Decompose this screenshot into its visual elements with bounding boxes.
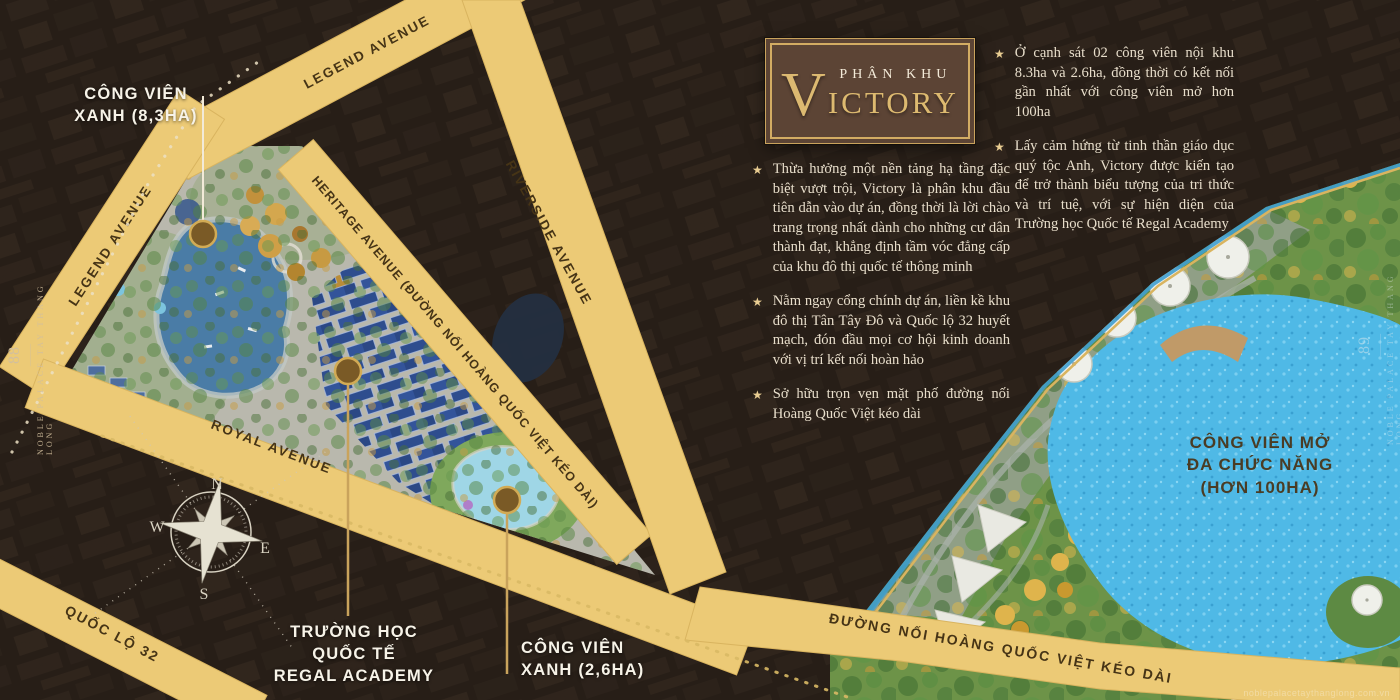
star-icon: ★ [994, 44, 1005, 122]
compass-e: E [260, 540, 270, 557]
marker-school [335, 358, 361, 384]
label-park83-line2: XANH (8,3HA) [54, 106, 218, 128]
left-rail-title: NOBLE PALACE TAY THANG LONG [36, 255, 54, 455]
feature-bullet-list: ★ Ở cạnh sát 02 công viên nội khu 8.3ha … [994, 44, 1234, 250]
left-page-number: 88 [6, 346, 24, 364]
right-page-number: 89 [1356, 336, 1374, 354]
feature-bullet-1-text: Ở cạnh sát 02 công viên nội khu 8.3ha và… [1015, 44, 1234, 122]
intro-bullet-list: ★ Thừa hưởng một nền tảng hạ tầng đặc bi… [752, 160, 1010, 439]
intro-bullet-2-text: Nằm ngay cổng chính dự án, liền kề khu đ… [773, 292, 1010, 370]
intro-bullet-1: ★ Thừa hưởng một nền tảng hạ tầng đặc bi… [752, 160, 1010, 277]
right-page-rail: 89 —— NOBLE PALACE TAY THANG LONG [1356, 245, 1400, 445]
title-rest: ICTORY [828, 85, 959, 121]
rail-dash: —— [24, 344, 36, 366]
compass-w: W [149, 519, 165, 536]
label-park-83ha: CÔNG VIÊN XANH (8,3HA) [54, 84, 218, 128]
star-icon: ★ [752, 385, 763, 424]
compass-s: S [200, 586, 209, 603]
title-row: V PHÂN KHU ICTORY [781, 61, 959, 122]
label-park26-line1: CÔNG VIÊN [521, 638, 671, 660]
star-icon: ★ [752, 160, 763, 277]
title-box-inner: V PHÂN KHU ICTORY [770, 43, 970, 139]
label-park83-line1: CÔNG VIÊN [54, 84, 218, 106]
star-icon: ★ [752, 292, 763, 370]
label-school-line1: TRƯỜNG HỌC [272, 622, 436, 644]
label-park26-line2: XANH (2,6HA) [521, 660, 671, 682]
intro-bullet-2: ★ Nằm ngay cổng chính dự án, liền kề khu… [752, 292, 1010, 370]
label-open-park: CÔNG VIÊN MỞ ĐA CHỨC NĂNG (HƠN 100HA) [1170, 432, 1350, 499]
label-openpark-line1: CÔNG VIÊN MỞ [1170, 432, 1350, 454]
intro-bullet-3-text: Sở hữu trọn vẹn mặt phố đường nối Hoàng … [773, 385, 1010, 424]
feature-bullet-2-text: Lấy cảm hứng từ tinh thần giáo dục quý t… [1015, 137, 1234, 235]
title-box: V PHÂN KHU ICTORY [765, 38, 975, 144]
intro-bullet-3: ★ Sở hữu trọn vẹn mặt phố đường nối Hoàn… [752, 385, 1010, 424]
marker-park83 [190, 221, 216, 247]
title-initial: V [781, 69, 826, 122]
compass-n: N [211, 476, 223, 493]
rail-dash: —— [1374, 334, 1386, 356]
feature-bullet-1: ★ Ở cạnh sát 02 công viên nội khu 8.3ha … [994, 44, 1234, 122]
feature-bullet-2: ★ Lấy cảm hứng từ tinh thần giáo dục quý… [994, 137, 1234, 235]
right-rail-title: NOBLE PALACE TAY THANG LONG [1386, 245, 1400, 445]
label-school-line2: QUỐC TẾ [272, 644, 436, 666]
intro-bullet-1-text: Thừa hưởng một nền tảng hạ tầng đặc biệt… [773, 160, 1010, 277]
watermark-url: noblepalacetaythanglong.com.vn [1243, 688, 1390, 698]
label-openpark-line3: (HƠN 100HA) [1170, 477, 1350, 499]
title-kicker: PHÂN KHU [839, 67, 951, 83]
star-icon: ★ [994, 137, 1005, 235]
label-school-line3: REGAL ACADEMY [272, 666, 436, 688]
brochure-page: LEGEND AVENUE LEGEND AVENUE HERITAGE AVE… [0, 0, 1400, 700]
left-page-rail: 88 —— NOBLE PALACE TAY THANG LONG [6, 255, 54, 455]
label-openpark-line2: ĐA CHỨC NĂNG [1170, 454, 1350, 476]
label-park-26ha: CÔNG VIÊN XANH (2,6HA) [521, 638, 671, 682]
label-school: TRƯỜNG HỌC QUỐC TẾ REGAL ACADEMY [272, 622, 436, 687]
marker-park26 [494, 487, 520, 513]
